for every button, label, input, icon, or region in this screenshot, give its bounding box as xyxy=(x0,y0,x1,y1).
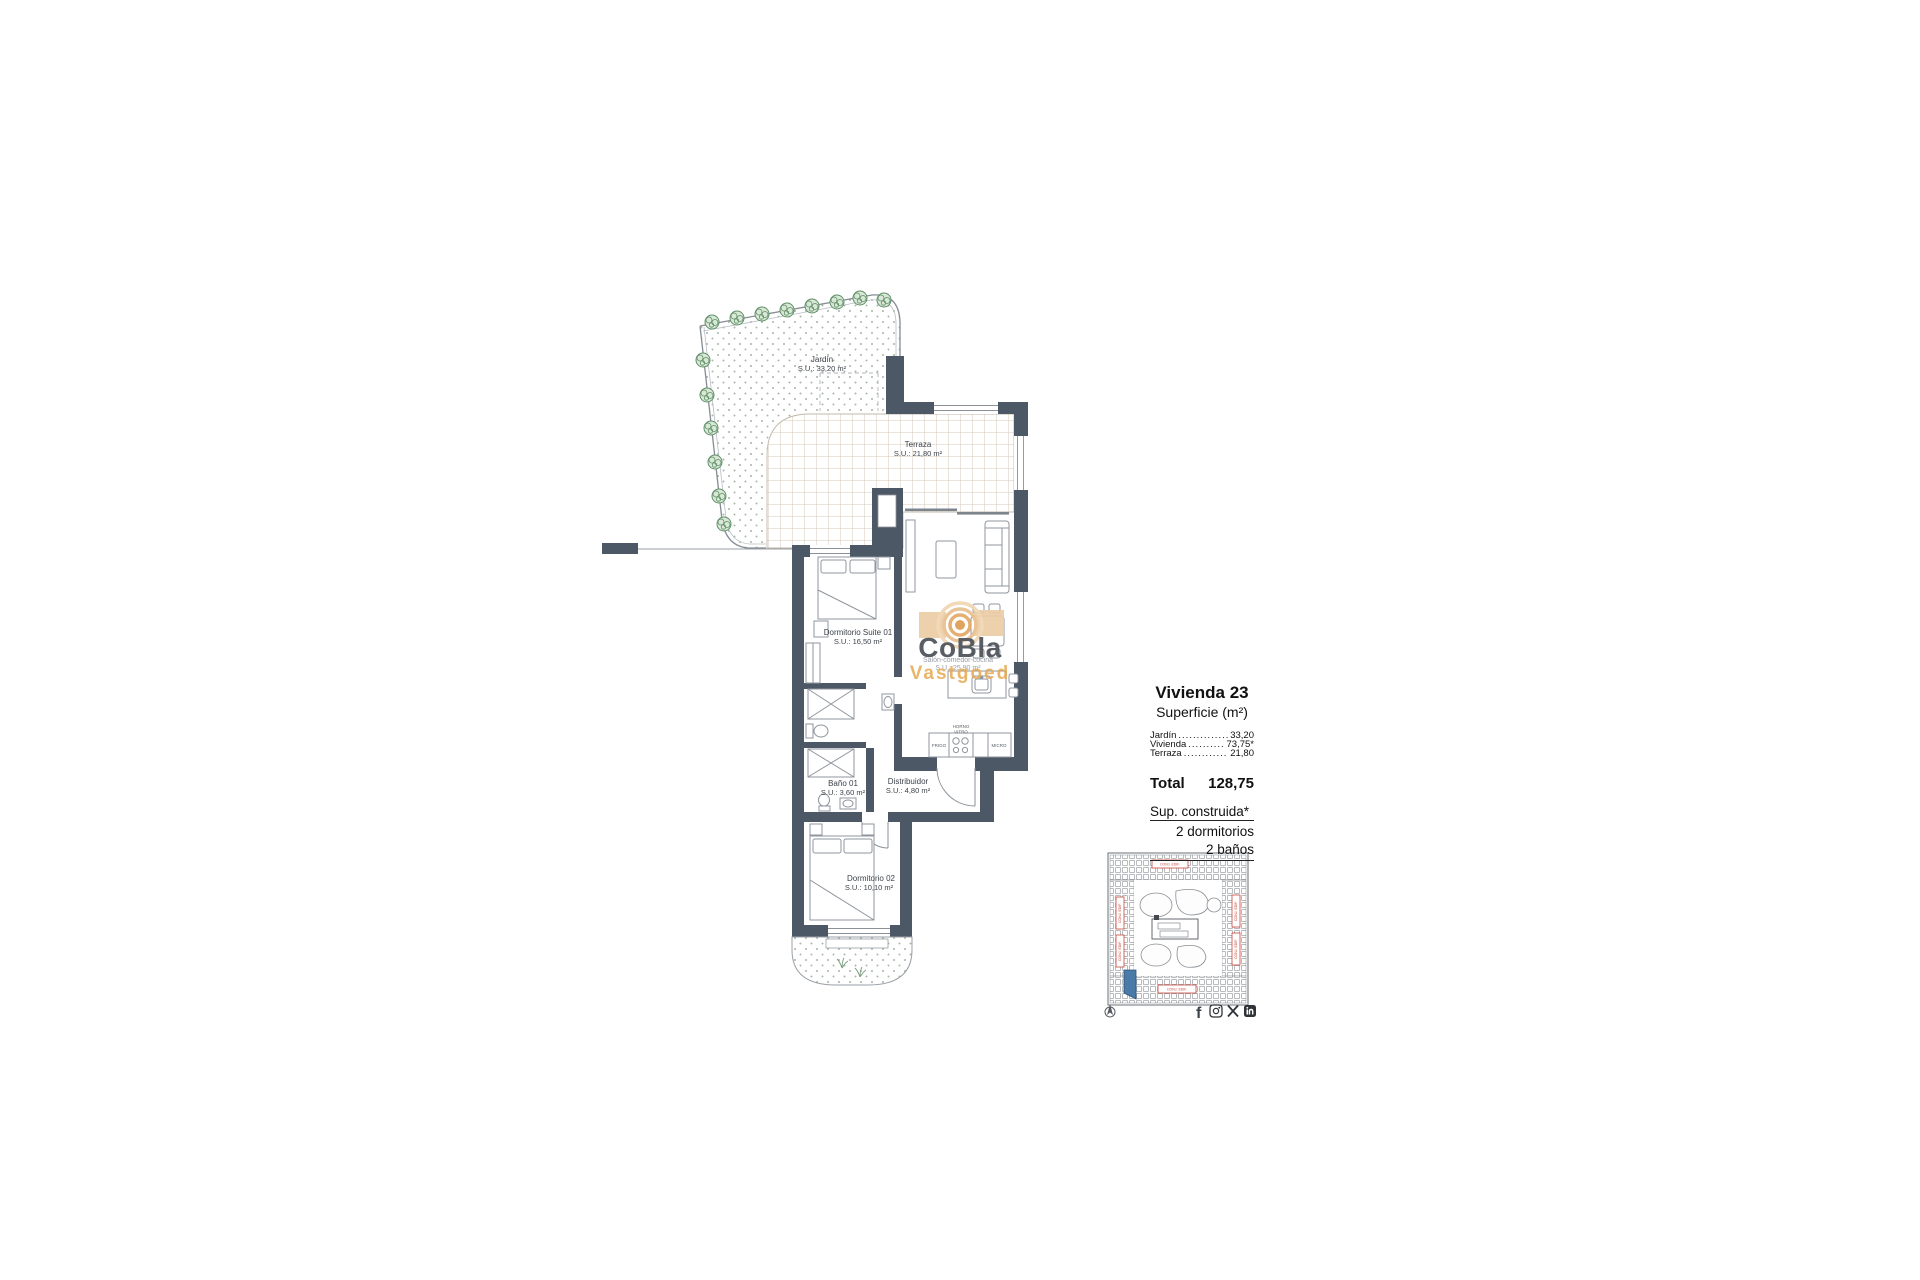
nightstand xyxy=(878,557,890,569)
central-building xyxy=(1152,915,1198,939)
window-top-wall xyxy=(934,402,998,414)
washbasin xyxy=(882,694,894,710)
oven-label: HORNO xyxy=(953,724,970,729)
floorplan-drawing: Jardín S.U.: 33,20 m² Terraza S.U.: 21,8… xyxy=(0,0,1920,1280)
linkedin-icon[interactable] xyxy=(1244,1005,1256,1017)
instagram-icon[interactable] xyxy=(1210,1005,1222,1017)
shower xyxy=(808,749,854,777)
social-icons: f xyxy=(1196,1005,1256,1022)
sliding-door xyxy=(957,512,1009,515)
sliding-door xyxy=(905,509,957,512)
watermark: CoBla Salón-comedor-cocina S.U.: 25,90 m… xyxy=(910,603,1010,684)
surface-subtitle: Superficie (m²) xyxy=(1150,704,1254,720)
entry-door xyxy=(937,768,975,806)
window-suite xyxy=(810,545,850,557)
wardrobe xyxy=(806,643,820,683)
washbasin xyxy=(840,798,856,809)
stool xyxy=(1009,674,1018,683)
subbrand-wordmark: Vastgoed xyxy=(910,663,1010,684)
garden-area-label: S.U.: 33,20 m² xyxy=(798,364,847,373)
bedroom2 xyxy=(810,824,874,920)
bedroom2-label: Dormitorio 02 xyxy=(847,874,896,883)
bed-suite xyxy=(818,557,876,619)
terrace-area-label: S.U.: 21,80 m² xyxy=(894,449,943,458)
suite-label: Dormitorio Suite 01 xyxy=(824,628,893,637)
bathroom1-area-label: S.U.: 3,60 m² xyxy=(821,788,866,797)
bedroom2-area-label: S.U.: 10,10 m² xyxy=(845,883,894,892)
floorplan-page: Jardín S.U.: 33,20 m² Terraza S.U.: 21,8… xyxy=(0,0,1920,1280)
toilet xyxy=(806,724,828,738)
tv-unit xyxy=(906,520,915,592)
hall-area-label: S.U.: 4,80 m² xyxy=(886,786,931,795)
coffee-table xyxy=(936,541,956,578)
block-label: CONJ. EDIF. xyxy=(1167,988,1187,992)
doorstep xyxy=(826,939,888,948)
surface-row: Terraza ....................... 21,80 xyxy=(1150,749,1254,758)
north-arrow-icon xyxy=(1105,1004,1115,1017)
site-plan: CONJ. EDIF. CONJ. EDIF. CONJ. EDIF. CONJ… xyxy=(1108,853,1248,1005)
bedrooms-count: 2 dormitorios xyxy=(1150,824,1254,839)
suite-area-label: S.U.: 16,50 m² xyxy=(834,637,883,646)
storage-niche xyxy=(878,495,896,527)
garden-label: Jardín xyxy=(811,355,833,364)
x-icon[interactable] xyxy=(1228,1006,1238,1017)
bathroom1-label: Baño 01 xyxy=(828,779,858,788)
block-label: CONJ. EDIF. xyxy=(1234,901,1238,921)
terrace-label: Terraza xyxy=(905,440,932,449)
block-label: CONJ. EDIF. xyxy=(1118,941,1122,961)
sofa xyxy=(985,521,1009,593)
surface-table: Jardín ....................... 33,20 Viv… xyxy=(1150,731,1254,758)
facebook-icon[interactable]: f xyxy=(1196,1005,1202,1022)
block-label: CONJ. EDIF. xyxy=(1160,863,1180,867)
unit-title: Vivienda 23 xyxy=(1150,683,1254,703)
block-label: CONJ. EDIF. xyxy=(1234,939,1238,959)
window-right-upper xyxy=(1014,436,1028,490)
window-bedroom2 xyxy=(828,925,890,937)
nightstand xyxy=(810,824,822,835)
bedroom-suite xyxy=(806,557,890,683)
window-right-lower xyxy=(1014,592,1028,662)
fridge-label: FRIGO xyxy=(932,743,947,748)
stool xyxy=(1009,688,1018,697)
ensuite-bath xyxy=(806,689,894,738)
total-label: Total xyxy=(1150,775,1185,792)
nightstand xyxy=(862,824,874,835)
total-value: 128,75 xyxy=(1208,775,1254,792)
front-porch xyxy=(792,937,912,985)
built-surface-note: Sup. construida* xyxy=(1150,804,1254,821)
hall-label: Distribuidor xyxy=(888,777,929,786)
block-label: CONJ. EDIF. xyxy=(1118,903,1122,923)
vitro-label: VITRO xyxy=(954,730,968,735)
micro-label: MICRO xyxy=(992,743,1007,748)
total-row: Total 128,75 xyxy=(1150,775,1254,792)
info-panel: Vivienda 23 Superficie (m²) Jardín .....… xyxy=(1150,683,1254,861)
bathrooms-count: 2 baños xyxy=(1150,842,1254,861)
shower xyxy=(808,689,854,719)
